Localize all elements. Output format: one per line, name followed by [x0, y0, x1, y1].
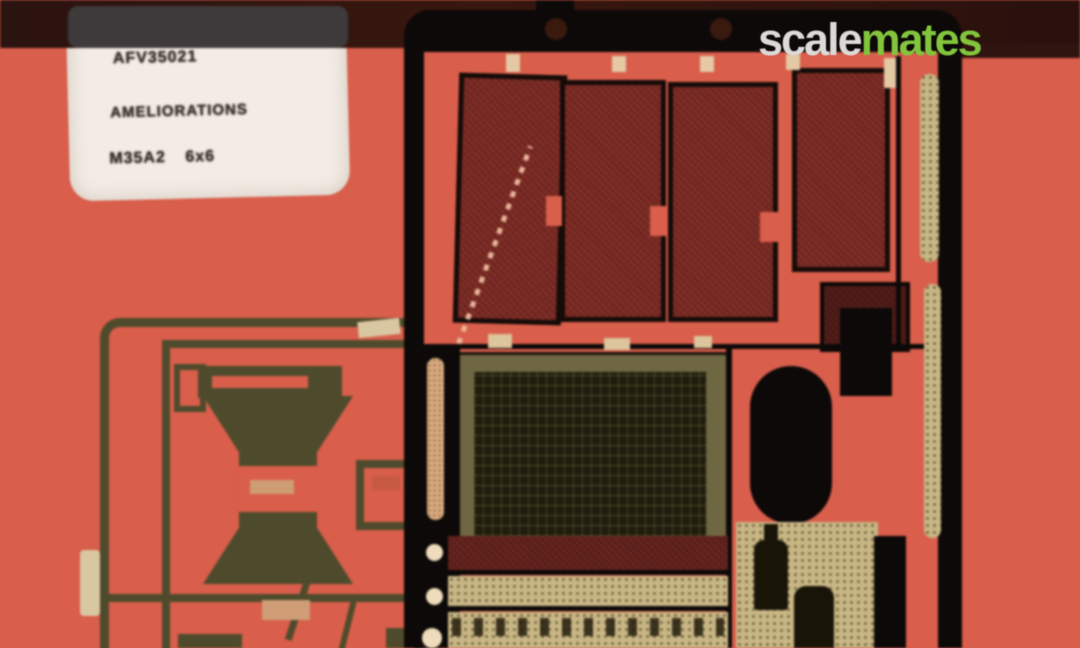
scalemates-watermark: scalemates	[758, 14, 981, 66]
tan-mark-2	[604, 338, 630, 350]
photo-layer: AFV35021 AMELIORATIONS M35A2 6x6	[0, 0, 1080, 648]
tan-tab-2	[612, 56, 626, 72]
rail-capsule	[427, 358, 444, 520]
fret-hole-1	[545, 18, 567, 40]
strip-row-1	[448, 536, 728, 570]
tan-mark-1	[488, 334, 512, 348]
tan-capsule-2	[924, 284, 941, 538]
strip-row-2	[448, 576, 728, 606]
watermark-scale-text: scale	[758, 14, 861, 65]
etch-line-h3	[448, 606, 728, 611]
mesh-panel-2	[560, 80, 666, 322]
tan-mark-3	[694, 336, 712, 348]
strip-row-3-dashes	[452, 618, 724, 636]
mesh-panel-3	[668, 82, 778, 322]
fret-top-tab	[536, 0, 574, 16]
connector-tab-1	[546, 196, 562, 226]
black-rect-part	[840, 308, 892, 396]
black-pill-part	[750, 366, 832, 524]
bottle-part-1	[754, 540, 788, 610]
rail-hole-2	[426, 588, 443, 605]
black-bar-part	[874, 536, 906, 648]
bottle-part-2	[794, 586, 834, 648]
fret-hole-2	[710, 18, 732, 40]
pe-fret-product-photo: AFV35021 AMELIORATIONS M35A2 6x6	[0, 0, 1080, 648]
connector-tab-2	[650, 206, 668, 236]
connector-tab-3	[760, 212, 778, 242]
etch-line-h2	[448, 570, 728, 575]
rail-hole-1	[426, 544, 443, 561]
pe-fret-main	[0, 0, 1080, 648]
grid-panel	[474, 372, 706, 546]
watermark-mates-text: mates	[861, 14, 981, 65]
etch-line-v1	[896, 56, 901, 348]
tan-capsule-1	[920, 74, 939, 262]
rail-hole-3	[422, 628, 442, 648]
tan-tab-3	[700, 56, 714, 72]
tan-tab-1	[506, 54, 520, 72]
mesh-panel-4	[792, 68, 890, 272]
